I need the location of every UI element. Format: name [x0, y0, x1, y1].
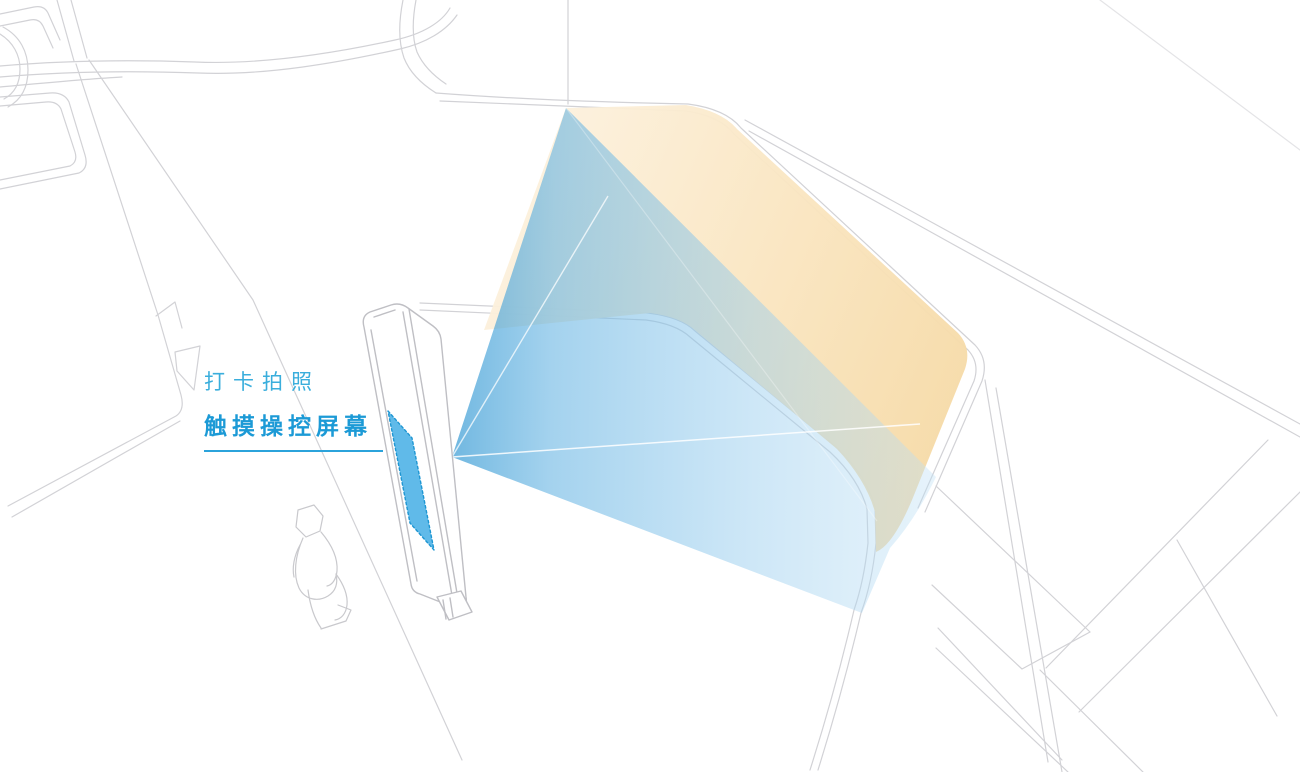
wireframe-topright-line — [1100, 0, 1300, 150]
wireframe-corner-shape — [0, 7, 60, 40]
wireframe-ramp3 — [1040, 670, 1143, 772]
wireframe-corner-shape-inner — [0, 20, 53, 48]
wireframe-ramp4 — [1177, 540, 1277, 716]
wireframe-plaza-edge — [8, 64, 182, 506]
wireframe-road-inner — [0, 15, 457, 77]
annotation-line2: 触摸操控屏幕 — [204, 407, 394, 441]
person-torso — [296, 538, 337, 599]
wireframe-wall-endcap-inner — [413, 0, 446, 84]
diagram-art — [0, 0, 1300, 772]
wireframe-platform-edge2 — [932, 585, 1090, 669]
wireframe-arc-inner — [0, 34, 20, 99]
wireframe-flap2 — [175, 346, 200, 390]
person-arm-right — [321, 532, 337, 586]
wireframe-planter-outer — [0, 93, 86, 189]
person-leg-left — [308, 590, 321, 628]
wireframe-steep1 — [985, 380, 1048, 762]
wireframe-path-band — [57, 0, 74, 61]
person-foot — [321, 605, 351, 629]
wireframe-plaza-edge-inner — [12, 421, 180, 517]
diagram-canvas: 打卡拍照 触摸操控屏幕 — [0, 0, 1300, 772]
touchscreen-kiosk — [363, 304, 472, 620]
person-head — [296, 505, 323, 537]
wireframe-flap1 — [156, 302, 182, 328]
annotation: 打卡拍照 触摸操控屏幕 — [204, 366, 394, 452]
kiosk-base — [437, 591, 472, 620]
annotation-underline — [204, 450, 383, 452]
wireframe-planter-inner — [0, 102, 76, 180]
annotation-line1: 打卡拍照 — [204, 366, 394, 396]
wireframe-wall-endcap — [400, 0, 436, 93]
wireframe-ramp1b — [1079, 492, 1300, 712]
wireframe-path-band2 — [71, 0, 87, 58]
person-figure — [293, 505, 351, 629]
